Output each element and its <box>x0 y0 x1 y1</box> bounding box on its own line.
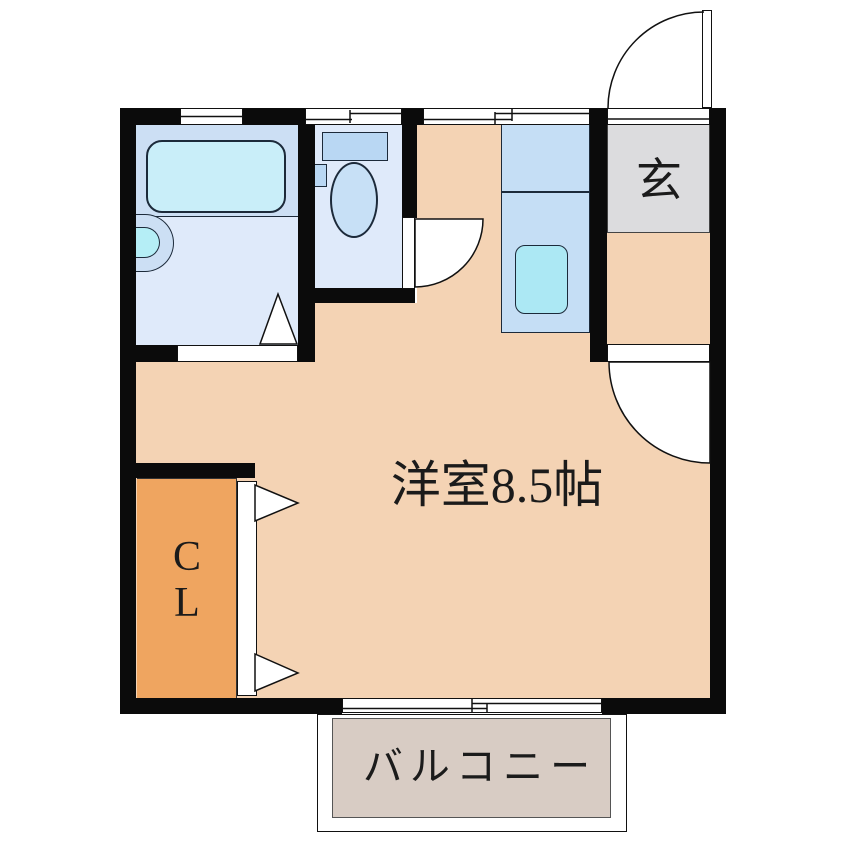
wall-top-mid <box>243 108 305 125</box>
living-room-floor-toilet-strip <box>315 303 417 362</box>
bathroom-window <box>180 108 243 125</box>
entrance-door-leaf <box>702 10 712 108</box>
wall-entrance-left <box>590 108 607 362</box>
wall-bottom-left <box>120 698 342 714</box>
toilet-bowl-icon <box>330 162 378 238</box>
living-room-label: 洋室8.5帖 <box>391 445 604 517</box>
wall-closet-top <box>120 463 255 478</box>
closet-label: C L <box>173 534 201 626</box>
bathroom-door <box>177 345 298 362</box>
toilet-tank-icon <box>322 132 388 161</box>
wall-bathroom-bottom <box>120 345 177 362</box>
wall-toilet-right <box>402 108 417 218</box>
wall-toilet-bottom <box>298 288 415 303</box>
toilet-door-leaf <box>402 217 415 289</box>
hallway-floor <box>607 233 710 362</box>
closet-door-track <box>237 481 257 696</box>
bathtub-icon <box>146 140 286 213</box>
entrance-label: 玄 <box>636 144 682 210</box>
kitchen-sink-icon <box>515 245 568 314</box>
living-top-window <box>423 108 590 125</box>
closet-label-line-2: L <box>173 580 201 626</box>
wall-bath-toilet-divider <box>298 108 315 362</box>
closet-label-line-1: C <box>173 534 201 580</box>
interior-door-panel <box>607 344 710 362</box>
wall-bottom-right <box>602 698 726 714</box>
toilet-window <box>305 108 402 125</box>
balcony-window <box>342 698 602 713</box>
wall-left <box>120 108 136 714</box>
toilet-flush-handle-icon <box>315 164 327 187</box>
floor-plan: 洋室8.5帖 玄 C L バルコニー <box>0 0 846 846</box>
kitchen-counter-divider <box>501 191 590 193</box>
wall-right <box>710 108 726 714</box>
balcony-label: バルコニー <box>363 734 597 792</box>
entrance-doorway <box>607 108 710 125</box>
entrance-door-arc <box>608 12 704 108</box>
